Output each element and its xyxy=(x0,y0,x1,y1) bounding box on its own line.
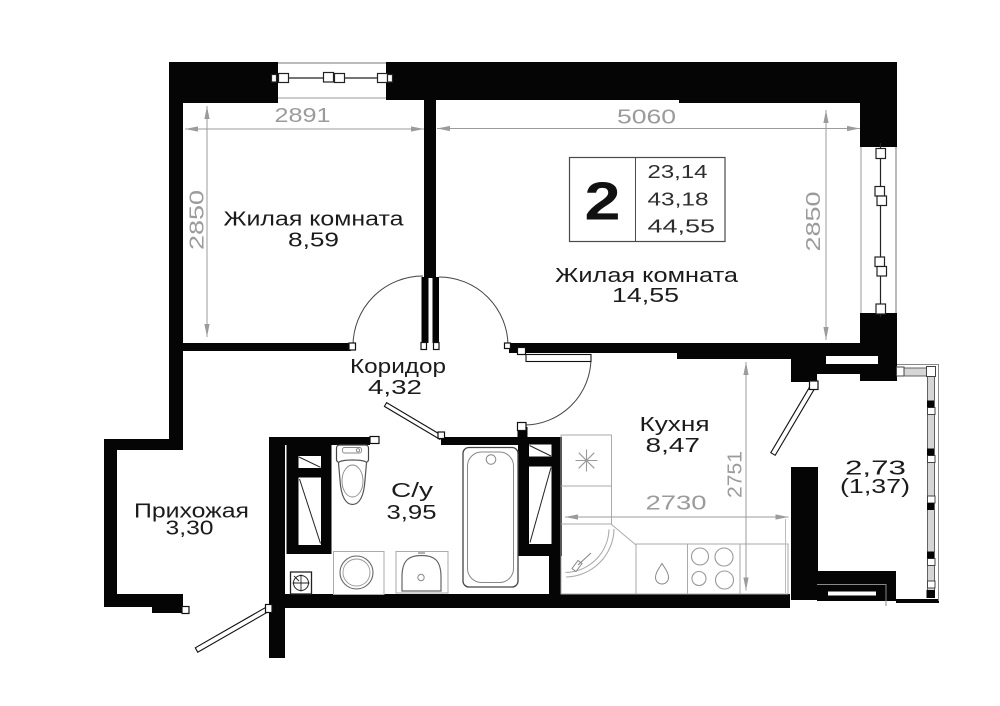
svg-text:44,55: 44,55 xyxy=(648,216,716,236)
svg-text:Жилая комната: Жилая комната xyxy=(224,208,405,231)
svg-text:14,55: 14,55 xyxy=(612,284,679,307)
svg-text:5060: 5060 xyxy=(617,107,676,129)
svg-text:(1,37): (1,37) xyxy=(840,475,910,498)
svg-text:2891: 2891 xyxy=(275,105,331,127)
svg-text:3,95: 3,95 xyxy=(387,501,437,524)
svg-text:3,30: 3,30 xyxy=(166,517,214,540)
svg-text:Коридор: Коридор xyxy=(350,355,446,378)
svg-text:8,47: 8,47 xyxy=(646,434,701,457)
svg-text:2850: 2850 xyxy=(803,192,825,252)
svg-text:43,18: 43,18 xyxy=(648,190,709,210)
svg-text:Кухня: Кухня xyxy=(640,413,710,436)
svg-text:2850: 2850 xyxy=(187,190,209,250)
svg-text:23,14: 23,14 xyxy=(648,162,708,182)
svg-text:2730: 2730 xyxy=(646,493,707,515)
svg-text:4,32: 4,32 xyxy=(368,376,422,399)
svg-text:2: 2 xyxy=(585,172,621,232)
svg-text:2751: 2751 xyxy=(725,451,747,498)
svg-text:С/у: С/у xyxy=(391,479,434,502)
svg-text:8,59: 8,59 xyxy=(288,229,339,252)
